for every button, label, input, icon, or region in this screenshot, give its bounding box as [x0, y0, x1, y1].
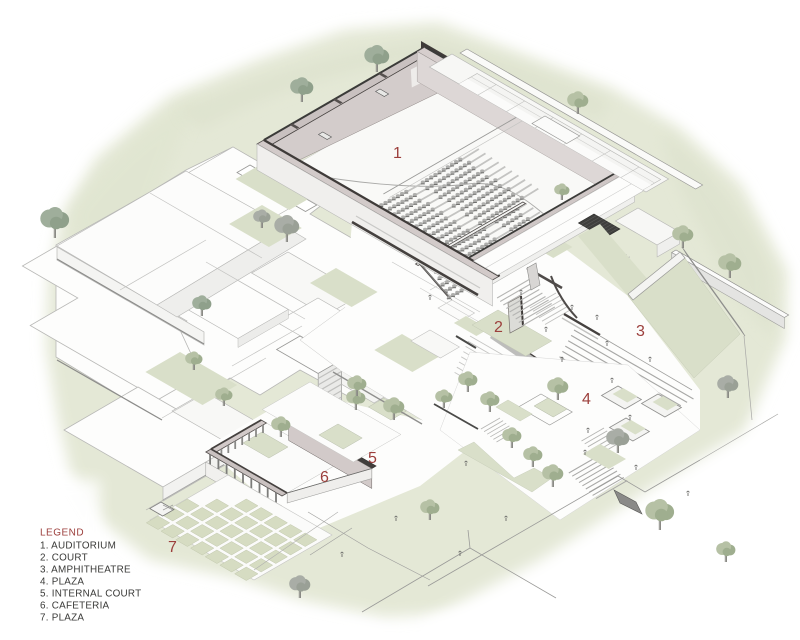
- svg-text:7. PLAZA: 7. PLAZA: [40, 613, 84, 624]
- svg-text:4: 4: [582, 391, 591, 408]
- svg-text:5. INTERNAL COURT: 5. INTERNAL COURT: [40, 589, 141, 600]
- svg-text:1: 1: [393, 145, 402, 162]
- svg-text:2. COURT: 2. COURT: [40, 552, 88, 563]
- svg-text:2: 2: [494, 319, 503, 336]
- svg-text:3: 3: [636, 323, 645, 340]
- svg-text:7: 7: [168, 539, 177, 556]
- svg-text:6: 6: [320, 469, 329, 486]
- svg-text:1. AUDITORIUM: 1. AUDITORIUM: [40, 540, 116, 551]
- svg-text:4. PLAZA: 4. PLAZA: [40, 576, 84, 587]
- svg-text:3. AMPHITHEATRE: 3. AMPHITHEATRE: [40, 564, 131, 575]
- svg-text:LEGEND: LEGEND: [40, 528, 84, 539]
- svg-text:5: 5: [368, 450, 377, 467]
- svg-text:6. CAFETERIA: 6. CAFETERIA: [40, 601, 110, 612]
